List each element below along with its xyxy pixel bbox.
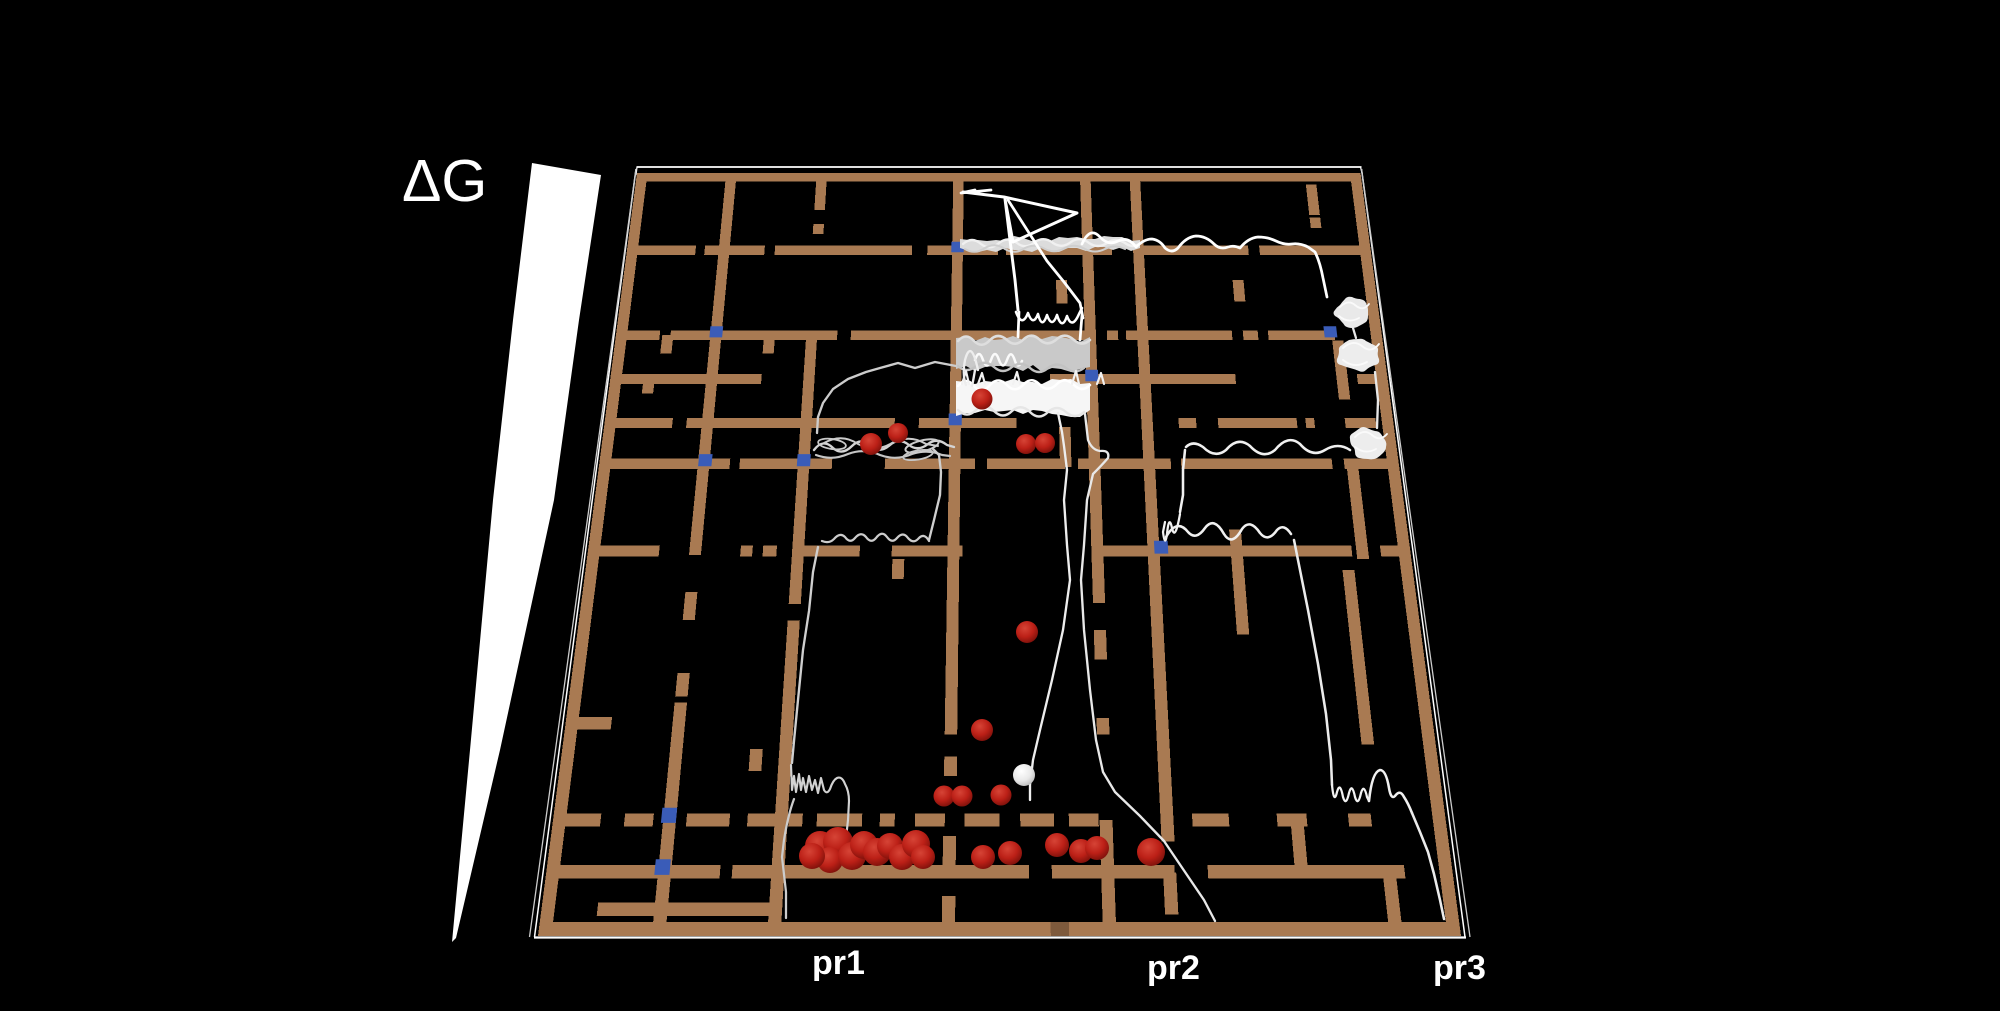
svg-text:ΔG: ΔG — [402, 148, 487, 214]
svg-text:pr2: pr2 — [1147, 949, 1200, 987]
svg-text:pr1: pr1 — [812, 944, 865, 982]
svg-text:pr3: pr3 — [1433, 949, 1486, 987]
